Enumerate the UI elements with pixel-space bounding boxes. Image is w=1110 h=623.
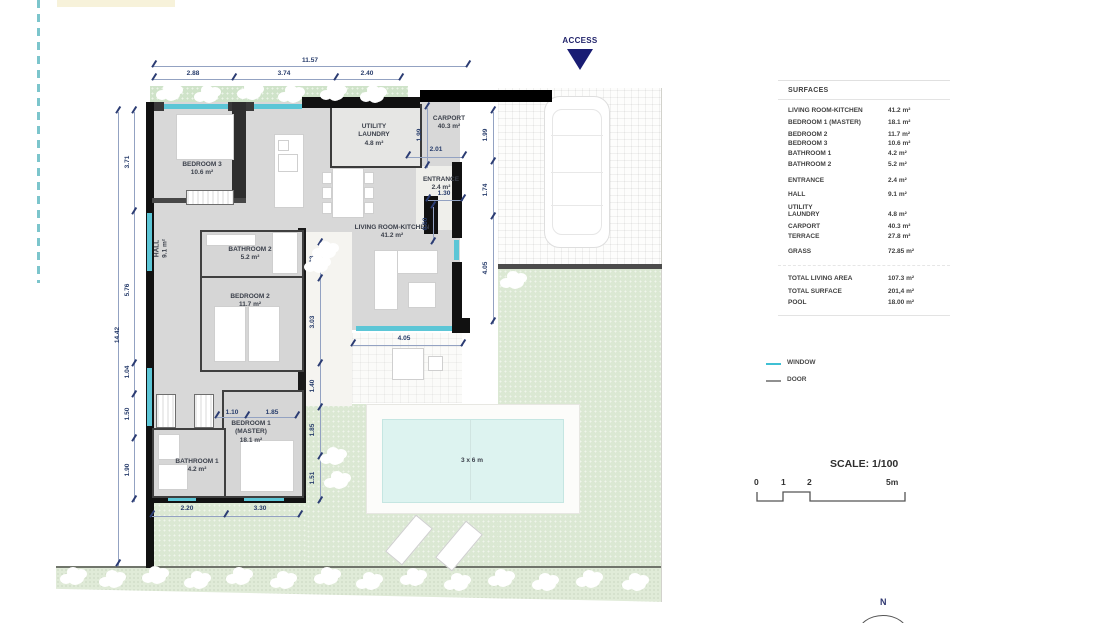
terrace-chair	[428, 356, 443, 371]
dim-label: 1.40	[309, 366, 317, 406]
sofa	[374, 250, 398, 310]
table-row: UTILITY LAUNDRY4.8 m²	[778, 204, 950, 219]
planting-strip	[56, 568, 662, 604]
chair	[364, 187, 374, 199]
house-floor-living	[352, 232, 460, 330]
car	[544, 96, 610, 248]
north-label: N	[880, 597, 887, 607]
table-row-total: TOTAL SURFACE201,4 m²	[778, 288, 950, 295]
window	[147, 368, 152, 426]
dim-label: 5.76	[124, 270, 132, 310]
bush	[582, 575, 592, 583]
highlight-smudge	[57, 0, 175, 7]
east-wall	[452, 262, 462, 324]
dimension-line	[217, 417, 297, 418]
table-row: BEDROOM 1 (MASTER)18.1 m²	[778, 119, 950, 126]
cooktop	[278, 140, 289, 151]
wall	[302, 97, 420, 108]
bush	[366, 90, 376, 98]
toilet	[158, 434, 180, 460]
bush	[326, 452, 336, 460]
bush	[243, 87, 253, 95]
table-row: LIVING ROOM-KITCHEN41.2 m²	[778, 107, 950, 114]
dim-label: 1.04	[124, 352, 132, 392]
table-row: BATHROOM 14.2 m²	[778, 150, 950, 157]
surfaces-title: SURFACES	[778, 81, 950, 99]
table-row: BEDROOM 310.6 m²	[778, 140, 950, 147]
dim-label: 1.74	[482, 170, 490, 210]
surfaces-table: SURFACES LIVING ROOM-KITCHEN41.2 m² BEDR…	[778, 80, 950, 316]
ottoman	[408, 282, 436, 308]
chair	[364, 172, 374, 184]
bush	[330, 476, 340, 484]
bush	[494, 574, 504, 582]
dim-label: 1.50	[124, 394, 132, 434]
room-label-bathroom2: BATHROOM 2 5.2 m²	[205, 246, 295, 263]
car-windshield-line	[551, 135, 603, 136]
dimension-line	[153, 66, 467, 67]
dim-label: 0.60	[422, 204, 430, 244]
dim-label: 1.90	[124, 450, 132, 490]
closet	[156, 394, 176, 428]
dimension-line	[152, 516, 300, 517]
scale-tick-0: 0	[754, 477, 759, 487]
dimension-line	[134, 112, 135, 502]
chair	[322, 187, 332, 199]
dim-label: 4.05	[482, 248, 490, 288]
dim-label: 1.51	[309, 458, 317, 498]
room-label-bedroom3: BEDROOM 3 10.6 m²	[157, 161, 247, 178]
dim-label: 14.42	[114, 315, 122, 355]
window	[147, 213, 152, 271]
dim-label: 2.01	[416, 146, 456, 154]
window	[164, 104, 228, 109]
scale-tick-1: 1	[781, 477, 786, 487]
dim-label: 3.30	[240, 505, 280, 513]
dimension-tick	[398, 73, 404, 81]
divider	[778, 315, 950, 316]
vanity	[206, 234, 256, 246]
bush	[538, 578, 548, 586]
sink	[278, 154, 298, 172]
window	[254, 104, 302, 109]
dim-label: 2.40	[347, 70, 387, 78]
terrace-window	[356, 326, 452, 331]
scale-tick-2: 2	[807, 477, 812, 487]
table-row: BEDROOM 211.7 m²	[778, 131, 950, 138]
bed	[176, 114, 234, 160]
carport-wall	[420, 90, 552, 102]
plot-edge-line	[661, 88, 662, 602]
bush	[326, 88, 336, 96]
bush	[628, 578, 638, 586]
access-label: ACCESS	[552, 36, 608, 45]
dimension-tick	[461, 151, 467, 159]
room-label-hall: HALL 9.1 m²	[154, 203, 171, 293]
bush	[362, 577, 372, 585]
window-legend-label: WINDOW	[787, 359, 816, 366]
table-row-total: TOTAL LIVING AREA107.3 m²	[778, 275, 950, 282]
window	[454, 240, 459, 260]
access-arrow-icon	[567, 49, 593, 70]
dim-label: 1.85	[309, 410, 317, 450]
room-label-bedroom2: BEDROOM 2 11.7 m²	[205, 293, 295, 310]
bush	[148, 571, 158, 579]
table-row: HALL9.1 m²	[778, 191, 950, 198]
dim-label: 3.71	[124, 142, 132, 182]
bush	[232, 572, 242, 580]
dimension-line	[320, 244, 321, 502]
pool-label: 3 x 6 m	[427, 457, 517, 465]
dim-label: 2.88	[173, 70, 213, 78]
table-row: BATHROOM 25.2 m²	[778, 161, 950, 168]
table-row: ENTRANCE2.4 m²	[778, 177, 950, 184]
bush	[320, 572, 330, 580]
car-roof-line	[551, 172, 603, 173]
retaining-wall	[498, 264, 662, 269]
terrace-table	[392, 348, 424, 380]
bed	[214, 306, 246, 362]
table-row: CARPORT40.3 m²	[778, 223, 950, 230]
wall-corner	[452, 318, 470, 333]
chair	[364, 202, 374, 214]
chair	[322, 202, 332, 214]
bush	[66, 572, 76, 580]
dim-label: 1.99	[482, 115, 490, 155]
bush	[310, 260, 320, 268]
bush	[506, 276, 516, 284]
bedroom3-east-wall	[232, 102, 246, 200]
bush	[190, 576, 200, 584]
dim-label: 3.03	[309, 302, 317, 342]
scale-bar	[752, 489, 912, 504]
scale-title: SCALE: 1/100	[830, 458, 898, 470]
dimension-line	[493, 112, 494, 324]
bush	[200, 90, 210, 98]
dim-label: 2.20	[167, 505, 207, 513]
dimension-line	[153, 79, 400, 80]
bush	[105, 575, 115, 583]
dim-label: 1.85	[252, 409, 292, 417]
table-row-total: POOL18.00 m²	[778, 299, 950, 306]
dining-table	[332, 168, 364, 218]
bush	[162, 88, 172, 96]
window-legend-swatch	[766, 363, 781, 365]
dimension-tick	[465, 60, 471, 68]
table-row: TERRACE27.8 m²	[778, 233, 950, 240]
bush	[450, 578, 460, 586]
bed	[240, 440, 294, 492]
property-boundary-dashed-line	[37, 0, 40, 283]
divider	[778, 265, 950, 267]
car-rear-line	[551, 205, 603, 206]
wardrobe	[186, 190, 234, 205]
dimension-line	[427, 108, 428, 168]
room-label-bedroom1: BEDROOM 1 (MASTER) 18.1 m²	[206, 420, 296, 445]
door-legend-label: DOOR	[787, 376, 807, 383]
table-row: GRASS72.85 m²	[778, 248, 950, 255]
bush	[406, 573, 416, 581]
north-indicator-icon	[858, 615, 908, 623]
dimension-line	[353, 345, 463, 346]
bush	[276, 576, 286, 584]
bed	[248, 306, 280, 362]
room-label-bathroom1: BATHROOM 1 4.2 m²	[152, 458, 242, 475]
dim-label: 4.05	[384, 335, 424, 343]
bush	[318, 246, 328, 254]
door-legend-swatch	[766, 380, 781, 382]
chair	[322, 172, 332, 184]
bush	[284, 90, 294, 98]
dim-label: 3.74	[264, 70, 304, 78]
dimension-line	[408, 157, 464, 158]
scale-tick-5m: 5m	[886, 477, 898, 487]
floor-plan-sheet: ACCESS 3 x 6 m	[0, 0, 1110, 623]
dim-label: 11.57	[290, 57, 330, 65]
